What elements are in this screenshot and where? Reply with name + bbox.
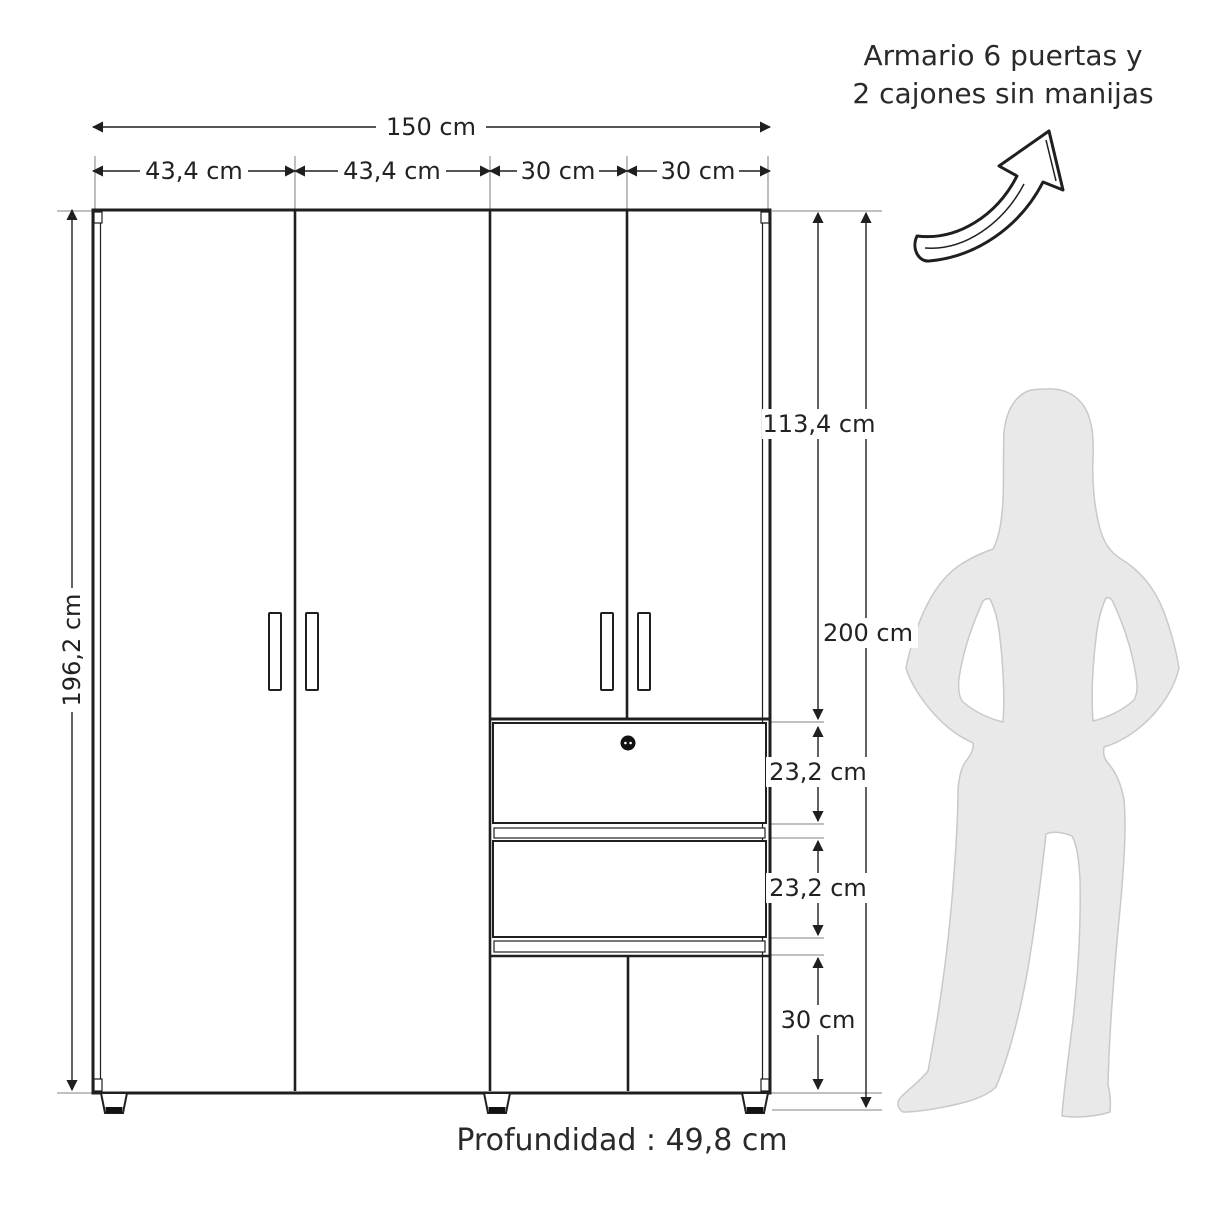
drawer-gap-strip [494, 941, 765, 952]
door-width-label-4: 30 cm [661, 157, 736, 185]
body-height-label: 196,2 cm [58, 594, 86, 707]
door-width-label-2: 43,4 cm [343, 157, 441, 185]
cabinet-body [93, 210, 770, 1093]
top-doors-height-label: 113,4 cm [763, 410, 876, 438]
corner-notch [761, 1079, 769, 1091]
human-silhouette [898, 389, 1179, 1117]
corner-notch [94, 1079, 102, 1091]
wardrobe-drawing [93, 210, 770, 1113]
cabinet-foot [484, 1093, 510, 1113]
keyhole-lock-icon [621, 736, 636, 751]
corner-notch [94, 212, 102, 223]
total-height-label: 200 cm [823, 619, 913, 647]
bottom-doors-height-label: 30 cm [781, 1006, 856, 1034]
corner-notch [761, 212, 769, 223]
door-handle [638, 613, 650, 690]
furniture-dimension-diagram: 150 cm 43,4 cm 43,4 cm 30 cm 30 cm 196,2… [0, 0, 1214, 1214]
door-handle [269, 613, 281, 690]
drawer2-height-label: 23,2 cm [769, 874, 867, 902]
drawer1-height-label: 23,2 cm [769, 758, 867, 786]
door-handle [306, 613, 318, 690]
title-block: Armario 6 puertas y 2 cajones sin manija… [852, 39, 1153, 261]
depth-label: Profundidad : 49,8 cm [456, 1123, 787, 1158]
drawer-2 [493, 841, 766, 937]
title-line-2: 2 cajones sin manijas [852, 77, 1153, 110]
total-width-label: 150 cm [386, 113, 476, 141]
title-line-1: Armario 6 puertas y [863, 39, 1142, 72]
door-handle [601, 613, 613, 690]
diagram-canvas: 150 cm 43,4 cm 43,4 cm 30 cm 30 cm 196,2… [0, 0, 1214, 1214]
hand-drawn-arrow-icon [915, 131, 1063, 261]
cabinet-foot [742, 1093, 768, 1113]
door-width-label-1: 43,4 cm [145, 157, 243, 185]
cabinet-foot [101, 1093, 127, 1113]
woman-scale-figure-icon [898, 389, 1179, 1117]
drawer-gap-strip [494, 828, 765, 838]
door-width-label-3: 30 cm [521, 157, 596, 185]
